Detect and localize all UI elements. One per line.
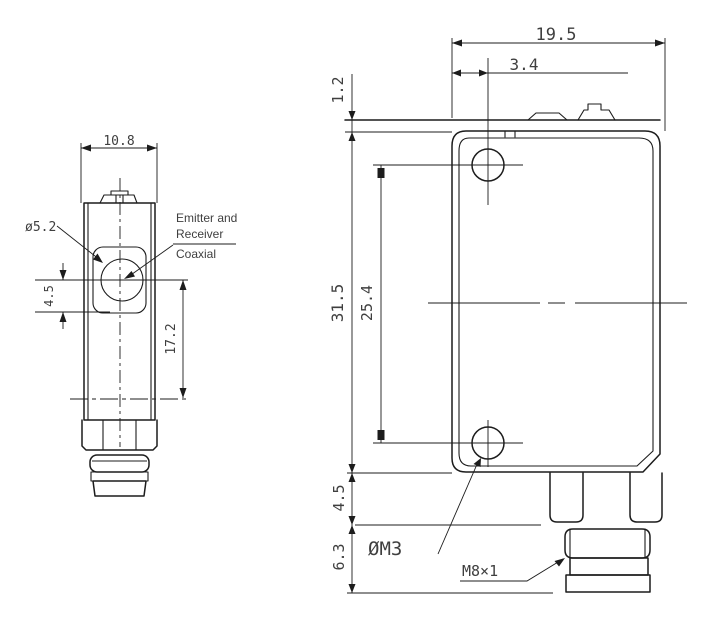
- dim-lens-offset: 4.5: [35, 263, 188, 329]
- dim-hole-spacing: 25.4: [358, 165, 455, 443]
- dim-vertical-stack: 1.2 31.5 4.5 6.3: [328, 74, 553, 593]
- front-connector: [82, 420, 157, 496]
- mounting-hole-bottom: [455, 420, 523, 467]
- side-view: 19.5 3.4 1.2 31.5 4.5 6.3: [328, 25, 687, 593]
- label-thread: M8×1: [460, 558, 565, 581]
- technical-drawing-canvas: 10.8 4.5 17.2 ø5.2 Emitter and Receiver: [0, 0, 721, 641]
- annotation-line-3: Coaxial: [176, 247, 216, 261]
- sensor-dimension-drawing: 10.8 4.5 17.2 ø5.2 Emitter and Receiver: [0, 0, 721, 641]
- dim-center-height: 17.2: [164, 280, 187, 398]
- lens-offset-dim: 4.5: [42, 285, 56, 307]
- connector-dim: 6.3: [330, 543, 348, 570]
- height-dim: 31.5: [328, 284, 347, 323]
- label-lens-diameter: ø5.2: [25, 220, 103, 263]
- hole-offset-dim: 3.4: [510, 55, 539, 74]
- thread-label: M8×1: [462, 562, 498, 580]
- lens-diameter-label: ø5.2: [25, 220, 56, 235]
- dim-front-width: 10.8: [81, 134, 157, 203]
- dim-side-width: 19.5: [452, 25, 665, 131]
- annotation-line-1: Emitter and: [176, 211, 237, 225]
- step-dim: 4.5: [330, 484, 348, 511]
- front-body-outline: [84, 191, 155, 420]
- annotation-line-2: Receiver: [176, 227, 223, 241]
- front-view: 10.8 4.5 17.2 ø5.2 Emitter and Receiver: [25, 134, 237, 496]
- center-height-dim: 17.2: [164, 323, 179, 354]
- side-connector: [550, 473, 662, 592]
- mounting-hole-label: ØM3: [368, 538, 402, 560]
- dim-hole-offset: 3.4: [452, 55, 628, 77]
- annotation-emitter-receiver: Emitter and Receiver Coaxial: [124, 211, 237, 279]
- cover-dim: 1.2: [329, 76, 347, 103]
- hole-spacing-dim: 25.4: [358, 285, 376, 321]
- front-width-dim: 10.8: [103, 134, 134, 149]
- side-width-dim: 19.5: [536, 25, 577, 45]
